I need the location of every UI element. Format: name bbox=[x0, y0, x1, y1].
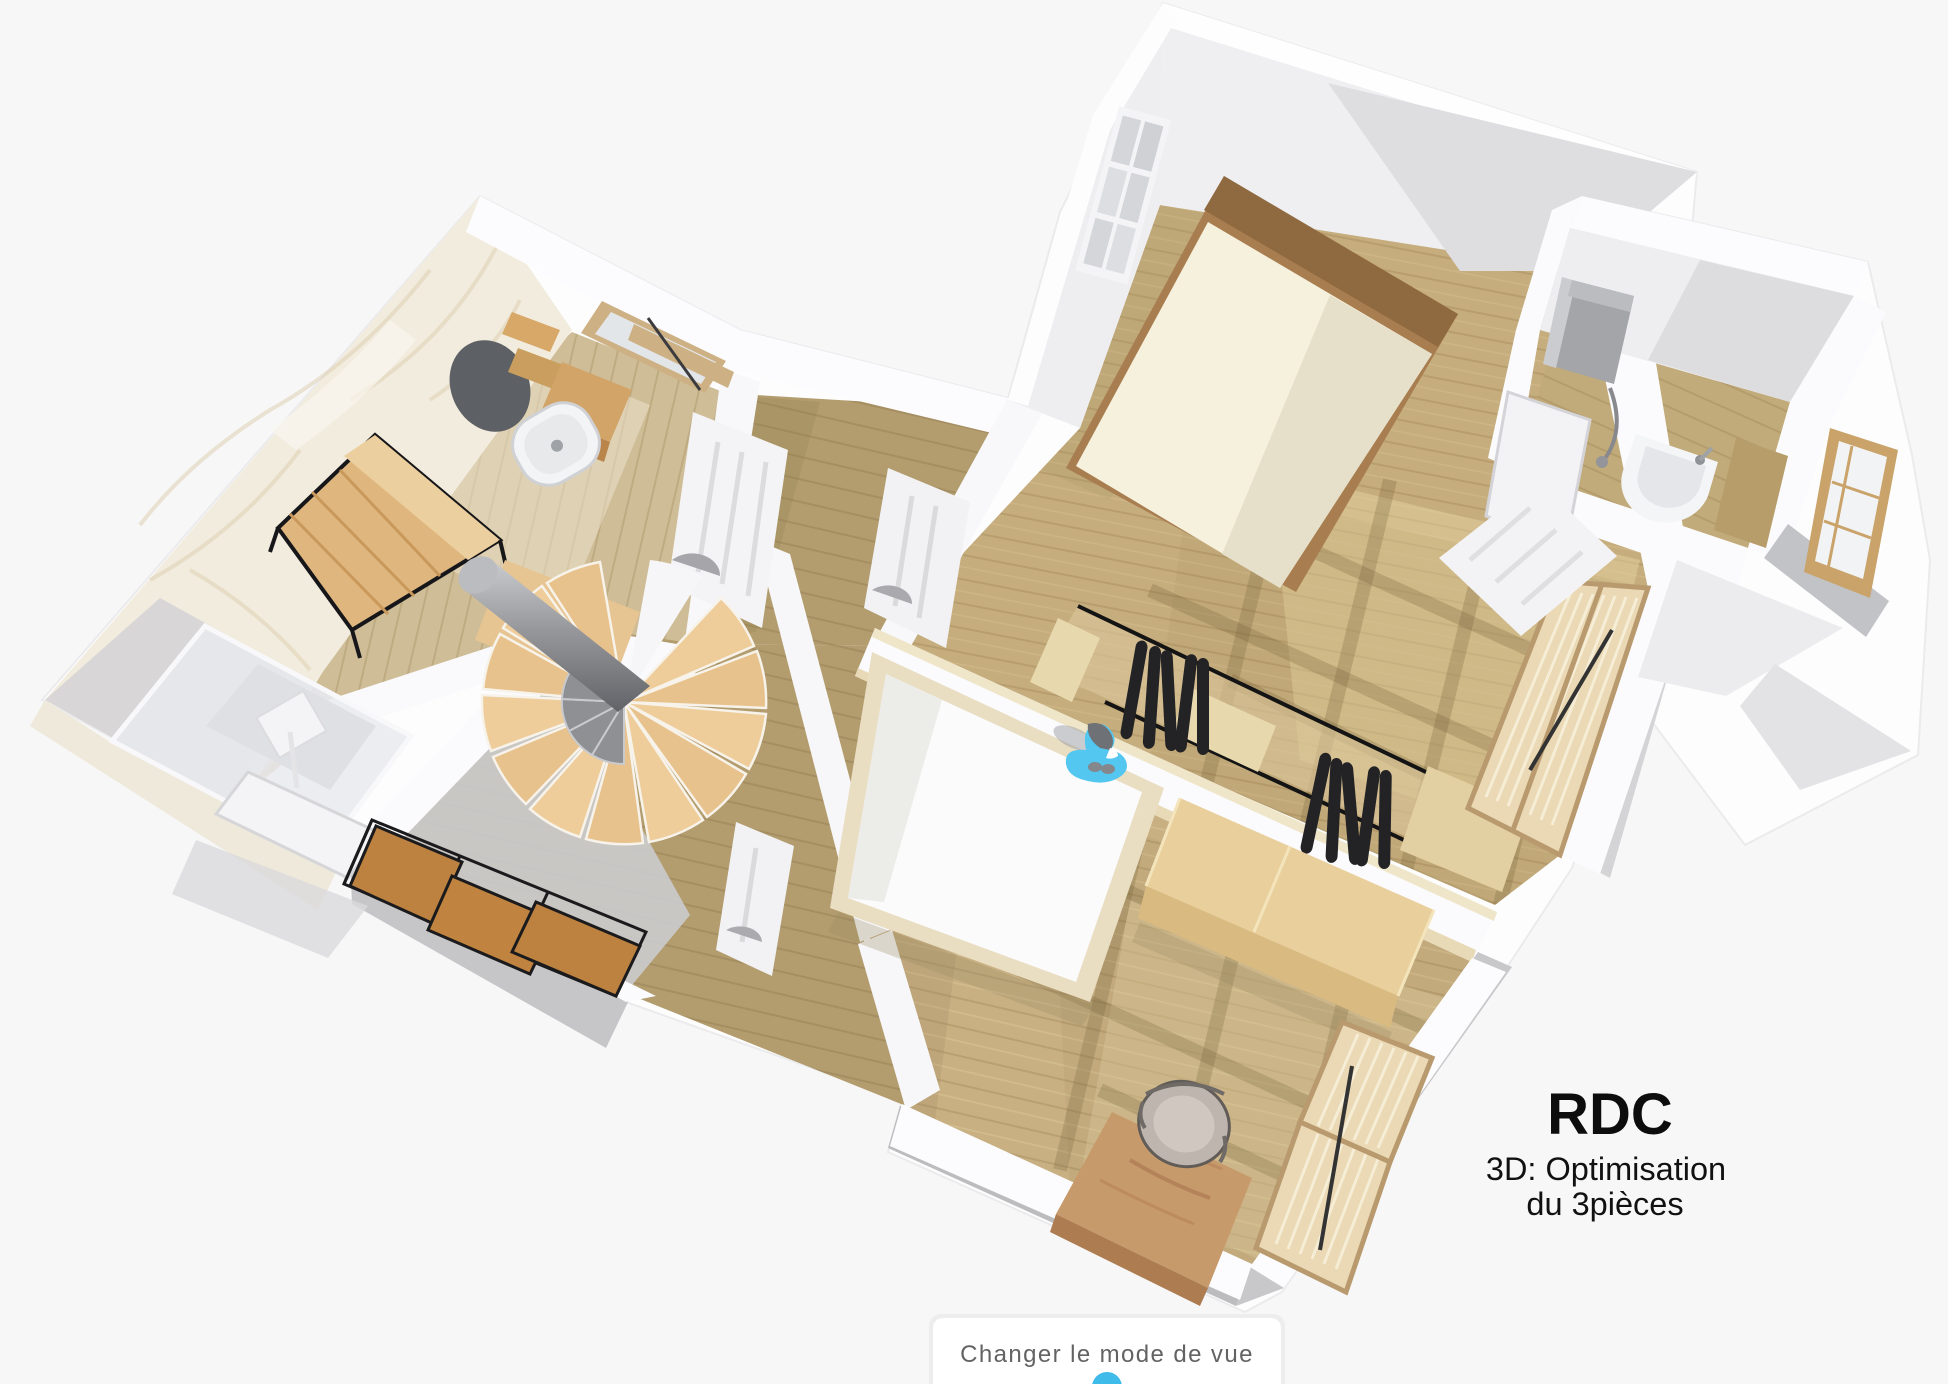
svg-text:3D: Optimisation: 3D: Optimisation bbox=[1486, 1151, 1726, 1187]
svg-text:RDC: RDC bbox=[1547, 1082, 1673, 1147]
svg-text:du 3pièces: du 3pièces bbox=[1526, 1186, 1683, 1222]
svg-text:Changer le mode de vue: Changer le mode de vue bbox=[960, 1341, 1254, 1368]
